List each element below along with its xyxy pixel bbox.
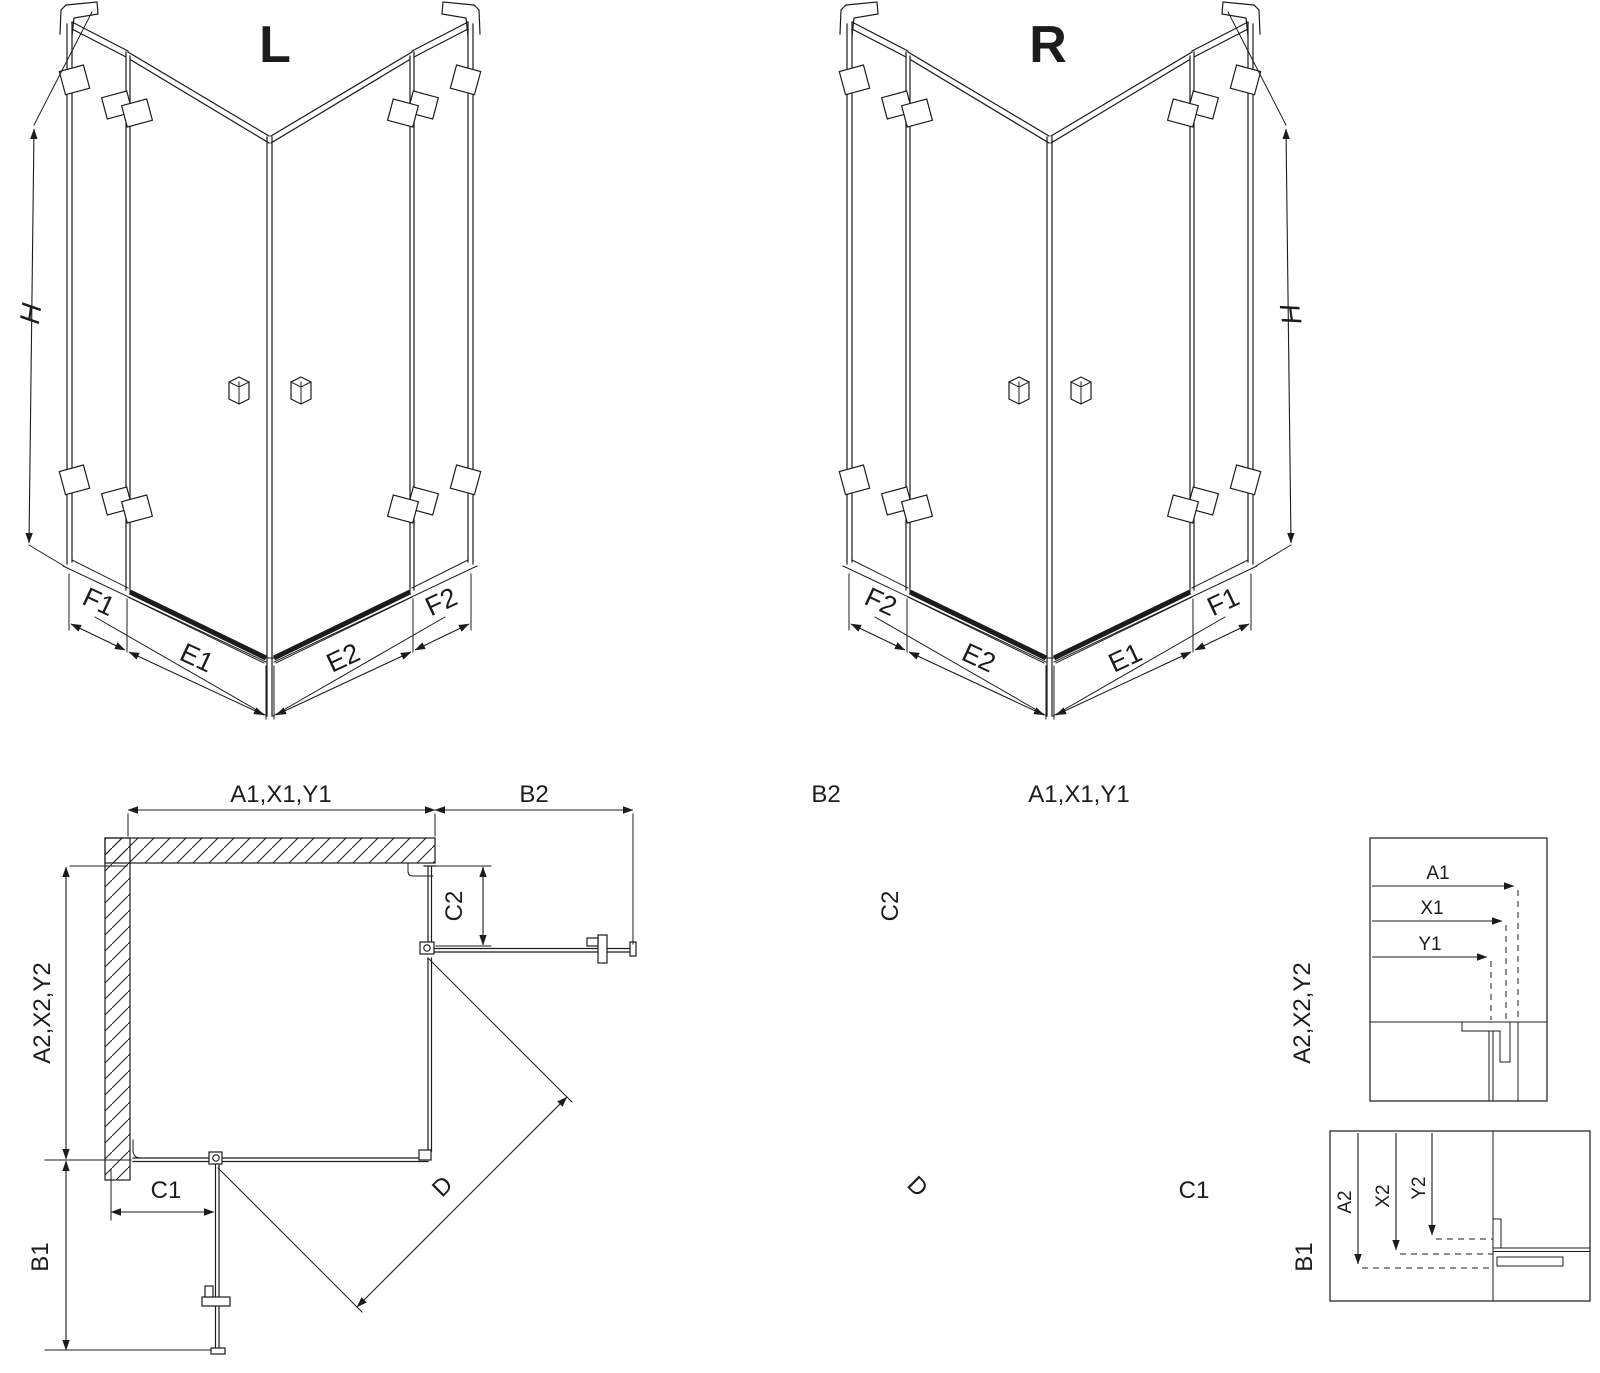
plan-left-top-dim-label: A1,X1,Y1 [230, 781, 331, 808]
iso-left-tray-label-f2: F2 [421, 582, 462, 623]
iso-right-title: R [1029, 16, 1067, 74]
plan-right-top-dim-label: A1,X1,Y1 [1028, 781, 1129, 808]
plan-right-side-dim-label: A2,X2,Y2 [1289, 962, 1316, 1063]
plan-left-side-dim-label: A2,X2,Y2 [29, 962, 56, 1063]
plan-view-right: B2 A1,X1,Y1 C2 A2,X2,Y2 C1 B1 D [811, 781, 1600, 1354]
height-dimension-line [29, 129, 34, 543]
iso-view-left: L H F1 E1 E2 F2 [14, 2, 481, 719]
iso-right-tray-label-f1: F1 [1203, 582, 1244, 623]
detail-lower-y2-label: Y2 [1409, 1176, 1430, 1199]
iso-left-title: L [259, 16, 291, 74]
drawing-canvas: L H F1 E1 E2 F2 R H F2 E2 E1 F1 A1,X1,Y1… [0, 0, 1600, 1373]
detail-upper-a1-label: A1 [1426, 863, 1449, 884]
iso-right-tray-label-e1: E1 [1104, 637, 1147, 678]
detail-lower-a2-label: A2 [1335, 1190, 1356, 1213]
detail-lower-x2-label: X2 [1373, 1184, 1394, 1207]
plan-right-d-label: D [902, 1171, 933, 1202]
plan-left-b1-label: B1 [27, 1242, 54, 1271]
detail-upper-y1-label: Y1 [1418, 934, 1441, 955]
plan-right-b1-label: B1 [1291, 1242, 1318, 1271]
detail-box-upper: A1 X1 Y1 [1370, 838, 1547, 1101]
height-dimension-line [1286, 129, 1291, 543]
detail-lower-border [1330, 1131, 1590, 1301]
plan-left-c1-label: C1 [151, 1177, 182, 1204]
detail-upper-border [1370, 838, 1547, 1101]
iso-right-tray-label-e2: E2 [957, 637, 1000, 678]
plan-left-b2-label: B2 [519, 781, 548, 808]
plan-view-left: A1,X1,Y1 B2 C2 A2,X2,Y2 C1 B1 D [27, 781, 636, 1354]
iso-left-tray-label-e2: E2 [322, 637, 365, 678]
iso-view-right: R H F2 E2 E1 F1 [839, 2, 1307, 719]
detail-box-lower: A2 X2 Y2 [1330, 1131, 1590, 1301]
iso-right-tray-label-f2: F2 [860, 582, 901, 623]
iso-left-tray-label-e1: E1 [175, 637, 218, 678]
iso-left-tray-label-f1: F1 [78, 582, 119, 623]
plan-right-c2-label: C2 [877, 891, 904, 922]
iso-right-height-label: H [1274, 302, 1308, 327]
shower-enclosure-technical-drawing: L H F1 E1 E2 F2 R H F2 E2 E1 F1 A1,X1,Y1… [0, 0, 1600, 1373]
plan-left-d-label: D [427, 1171, 458, 1202]
plan-left-c2-label: C2 [441, 891, 468, 922]
plan-right-c1-label: C1 [1179, 1177, 1210, 1204]
iso-left-height-label: H [14, 301, 48, 326]
plan-right-b2-label: B2 [811, 781, 840, 808]
detail-upper-x1-label: X1 [1420, 898, 1443, 919]
